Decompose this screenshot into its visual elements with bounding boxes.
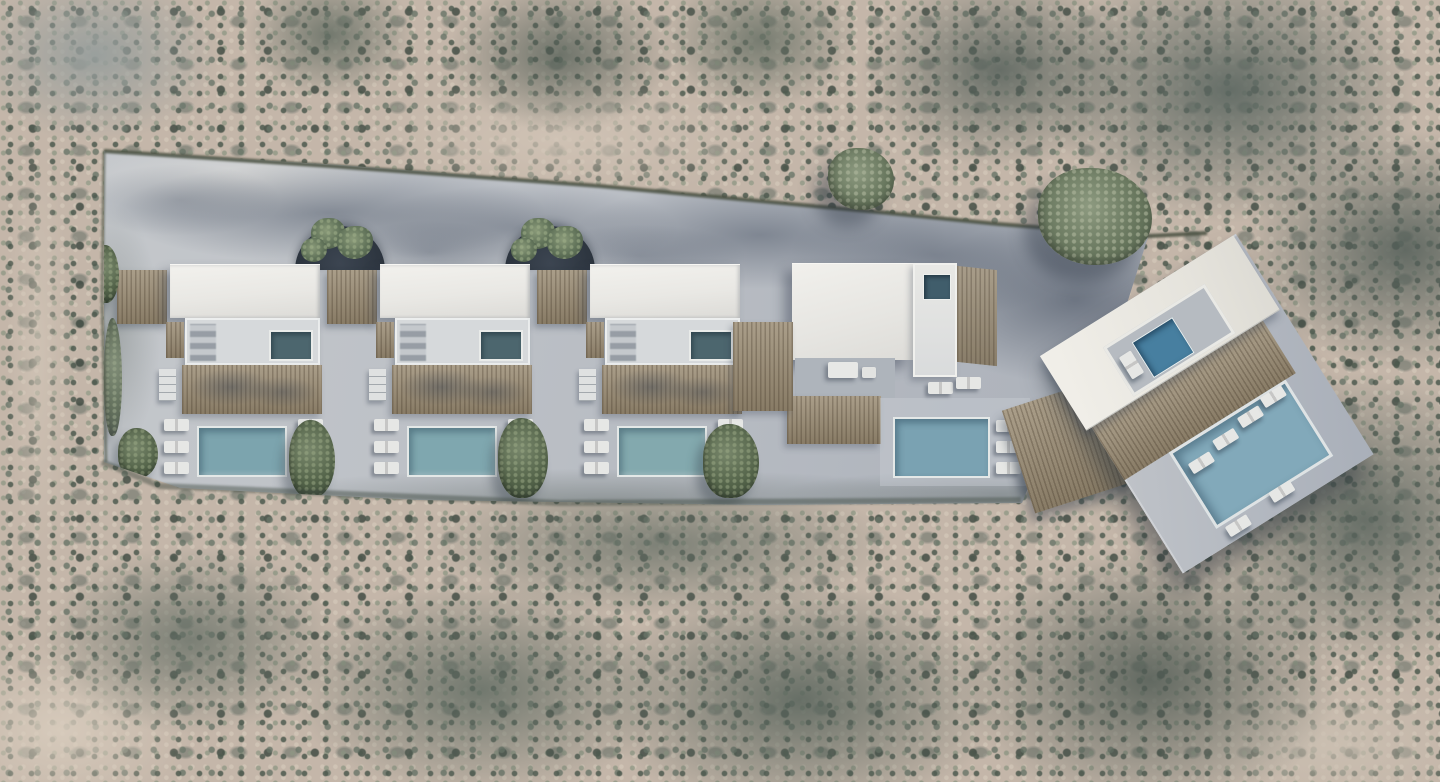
olive-tree bbox=[828, 148, 894, 210]
boundary-hedge-line bbox=[0, 0, 1440, 782]
aerial-render: Aerial top-down 3D render of a hillside … bbox=[0, 0, 1440, 782]
olive-tree bbox=[1038, 168, 1152, 265]
